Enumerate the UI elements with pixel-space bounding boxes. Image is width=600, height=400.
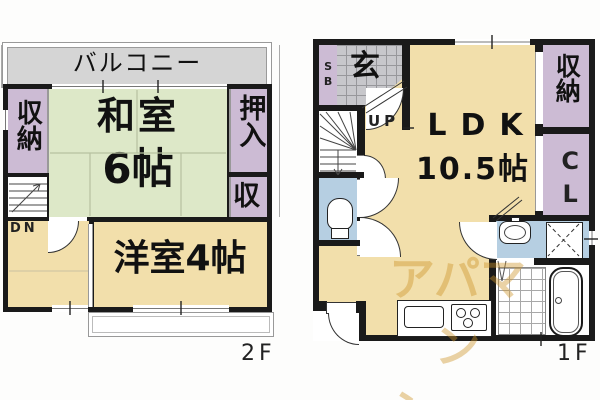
stove-icon bbox=[451, 304, 487, 331]
window-bottom-2f-b bbox=[133, 305, 229, 312]
window-top-2f bbox=[52, 84, 227, 89]
entrance-label: 玄 bbox=[350, 51, 380, 83]
floor1-label: 1F bbox=[557, 342, 592, 365]
kitchen-sink-icon bbox=[404, 306, 444, 328]
tatami-room-size: 6帖 bbox=[53, 147, 223, 191]
window-top-1f bbox=[455, 39, 530, 45]
shoe-box-label: SB bbox=[322, 60, 334, 90]
floor2-label: 2F bbox=[241, 342, 276, 365]
closet-cl-label: CL bbox=[557, 147, 582, 213]
stairs-1f bbox=[319, 111, 357, 178]
toilet-tank-icon bbox=[331, 228, 349, 239]
balcony-bottom bbox=[88, 312, 274, 337]
sliding-door-divider bbox=[88, 224, 93, 307]
bathtub-icon bbox=[549, 267, 583, 337]
western-room-label: 洋室4帖 bbox=[96, 240, 264, 278]
balcony-side-rail-right bbox=[279, 45, 280, 217]
balcony-label: バルコニー bbox=[55, 51, 220, 76]
watermark-line2: ショップ bbox=[370, 379, 545, 400]
toilet-icon bbox=[327, 198, 353, 230]
floorplan-canvas: バルコニー 収納 和室 6帖 押入 収 DN 洋室4帖 2F bbox=[0, 0, 600, 400]
ldk-size-label: 10.5帖 bbox=[398, 154, 548, 186]
sink-icon bbox=[499, 221, 531, 244]
closet-small-label: 収 bbox=[233, 183, 260, 211]
ldk-label: LDK bbox=[405, 110, 545, 142]
washing-machine-pan-icon bbox=[546, 222, 583, 260]
stairs-down-label: DN bbox=[10, 222, 38, 236]
closet-nw-label: 収納 bbox=[13, 99, 40, 151]
tatami-room-label: 和室 bbox=[53, 97, 223, 137]
window-left-2f bbox=[3, 110, 8, 130]
stairs-2f bbox=[8, 177, 47, 217]
oshiire-label: 押入 bbox=[235, 94, 263, 148]
bathroom-floor bbox=[498, 267, 546, 335]
window-right-1f bbox=[589, 231, 595, 245]
window-bottom-2f-a bbox=[52, 305, 88, 312]
door-opening bbox=[496, 258, 534, 265]
closet-ne-label: 収納 bbox=[553, 53, 579, 103]
stairs-up-label: UP bbox=[368, 114, 399, 130]
